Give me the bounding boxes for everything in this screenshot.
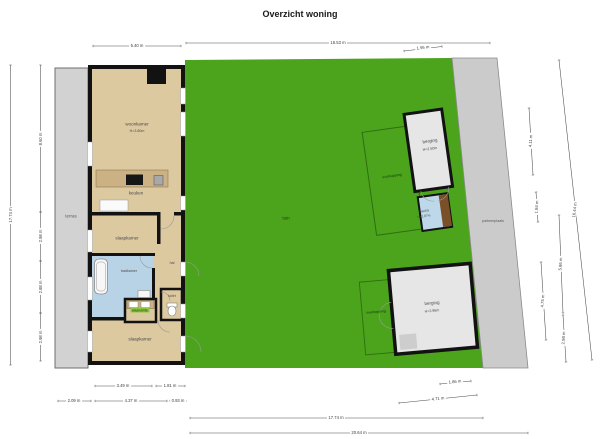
room-label-hal: hal: [170, 261, 175, 265]
room-label-keuken: keuken: [129, 190, 144, 195]
room-label-terras: terras: [65, 213, 77, 218]
room-label-toilet: toilet: [168, 294, 176, 298]
room-label-tuin: tuin: [282, 215, 289, 220]
dim-label: 2.98 m: [561, 330, 566, 346]
floor-plan-page: Overzicht woning terras woonkamer H=3.80…: [0, 0, 600, 439]
dim-label: 2.98 m: [38, 228, 42, 244]
room-label-slaapkamer-midden: slaapkamer: [115, 235, 138, 240]
dim-label: 2.09 m: [66, 399, 82, 403]
dim-label: 0.93 m: [170, 399, 186, 403]
dim-label: 2.98 m: [38, 329, 42, 345]
chimney-block: [147, 69, 166, 84]
dim-label: 2.88 m: [38, 279, 42, 295]
dim-label: 4.37 m: [123, 399, 139, 403]
page-title: Overzicht woning: [262, 9, 337, 19]
toilet-icon: [168, 306, 176, 316]
dim-label: 16.53 m: [329, 41, 347, 45]
dim-label: 3.49 m: [115, 384, 131, 388]
dim-label: 5.40 m: [129, 44, 145, 48]
dim-label: 17.74 m: [327, 416, 345, 420]
kitchen-sink-icon: [154, 176, 163, 186]
dim-label: 20.64 m: [350, 431, 368, 435]
cooktop-icon: [126, 175, 143, 186]
room-height-woonkamer: H=3.80m: [130, 129, 145, 133]
room-label-slaapkamer-onder: slaapkamer: [128, 336, 151, 341]
storage-floor-patch: [399, 333, 417, 349]
floor-plan-drawing: [0, 0, 600, 439]
dim-label: 17.74 m: [8, 206, 12, 224]
room-label-badkamer: badkamer: [121, 269, 137, 273]
room-label-woonkamer: woonkamer: [125, 121, 148, 126]
kitchen-cabinet: [100, 200, 128, 211]
main-house: [88, 65, 202, 365]
dim-label: 1.81 m: [162, 384, 178, 388]
dim-label: 8.60 m: [38, 131, 42, 147]
dim-label: 5.86 m: [558, 256, 563, 272]
room-label-parkeerplaats: parkeerplaats: [482, 219, 504, 223]
room-label-wasruimte: wasruimte: [131, 307, 150, 312]
bathroom-sink-icon: [138, 291, 150, 298]
